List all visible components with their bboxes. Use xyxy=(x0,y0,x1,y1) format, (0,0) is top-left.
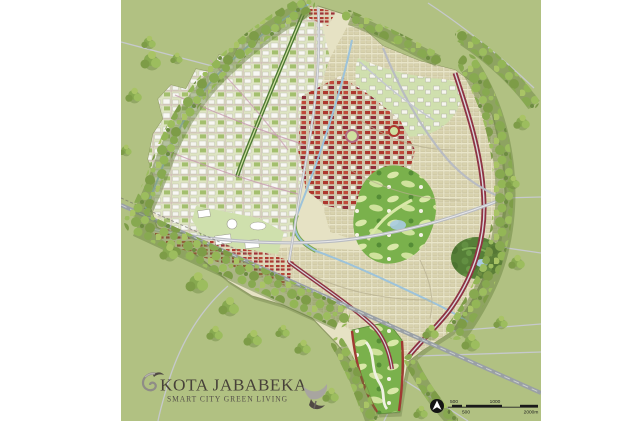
scale-label-0: 0 xyxy=(448,410,451,416)
map-subtitle: SMART CITY GREEN LIVING xyxy=(167,395,288,404)
scale-label-2000m: 2000m xyxy=(524,410,539,416)
north-arrow-icon xyxy=(430,399,444,413)
scale-label-top-500: 500 xyxy=(450,399,458,405)
roundabout-west xyxy=(346,130,358,142)
scale-label-500: 500 xyxy=(462,410,470,416)
map-title: KOTA JABABEKA xyxy=(160,376,307,395)
roundabout-east xyxy=(389,126,399,136)
scale-label-top-1000: 1000 xyxy=(490,399,501,405)
masterplan-map: KOTA JABABEKA SMART CITY GREEN LIVING 50… xyxy=(0,0,635,421)
poster-page: KOTA JABABEKA SMART CITY GREEN LIVING 50… xyxy=(0,0,635,421)
